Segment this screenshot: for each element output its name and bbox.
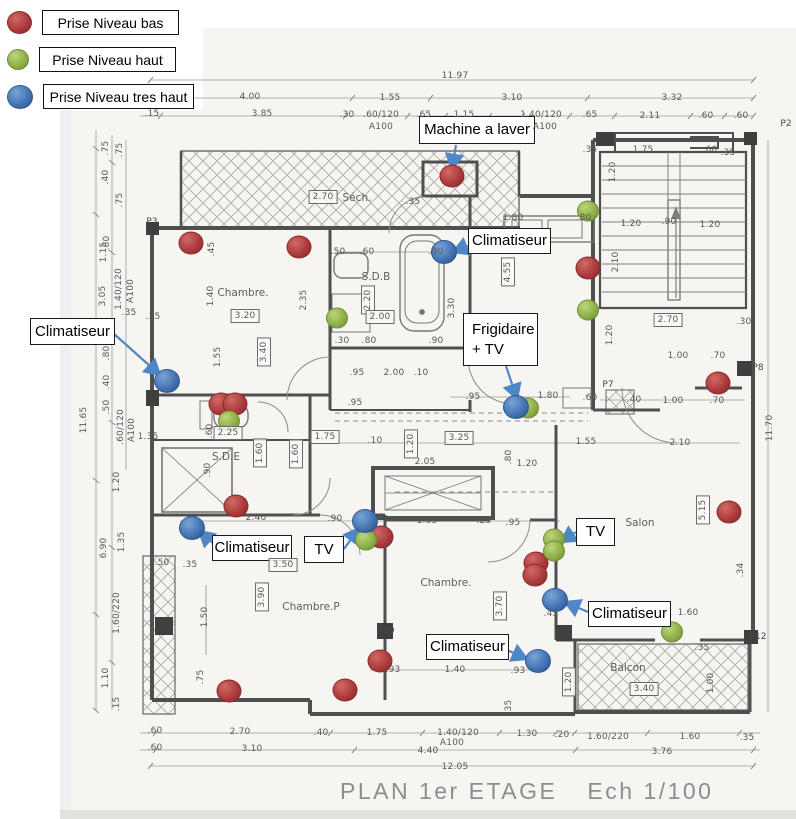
dim-label: .40 bbox=[314, 728, 329, 738]
dim-label: 1.60 bbox=[253, 439, 267, 468]
dim-label: 3.85 bbox=[252, 109, 273, 119]
dim-label: 1.20 bbox=[112, 472, 122, 493]
legend-red-dot-icon bbox=[7, 11, 32, 34]
dim-label: .35 bbox=[146, 312, 161, 322]
dim-label: A100 bbox=[127, 418, 137, 442]
callout-text: Climatiseur bbox=[215, 538, 290, 558]
legend-blue-dot-icon bbox=[7, 85, 33, 109]
plan-title-main: PLAN 1er ETAGE bbox=[340, 778, 557, 805]
dim-label: 1.35 bbox=[138, 432, 159, 442]
dim-label: 1.20 bbox=[517, 459, 538, 469]
dim-label: .35 bbox=[183, 560, 198, 570]
dim-label: .75 bbox=[101, 141, 111, 156]
outlet-dot-blue bbox=[352, 509, 378, 533]
dim-label: 2.70 bbox=[309, 190, 338, 204]
outlet-dot-red bbox=[576, 257, 601, 280]
room-label: Chambre. bbox=[217, 287, 268, 299]
pillar-label: P9 bbox=[160, 624, 171, 634]
dim-label: .35 bbox=[406, 197, 421, 207]
dim-label: A100 bbox=[126, 279, 136, 303]
pillar-label: P2 bbox=[780, 119, 791, 129]
dim-label: 3.30 bbox=[447, 298, 457, 319]
room-label: Salon bbox=[625, 517, 654, 529]
dim-label: .60 bbox=[703, 145, 718, 155]
dim-label: .50 bbox=[331, 247, 346, 257]
dim-label: .90 bbox=[429, 336, 444, 346]
dim-label: 3.25 bbox=[445, 431, 474, 445]
dim-label: .60 bbox=[360, 247, 375, 257]
dim-label: .40 bbox=[627, 395, 642, 405]
dim-label: .80 bbox=[102, 236, 112, 251]
dim-label: 1.35 bbox=[117, 532, 127, 553]
dim-label: .65 bbox=[583, 110, 598, 120]
dim-label: 1.55 bbox=[380, 93, 401, 103]
dim-label: 11.97 bbox=[442, 71, 469, 81]
dim-label: 2.70 bbox=[230, 727, 251, 737]
dim-label: 1.30 bbox=[517, 729, 538, 739]
dim-label: 3.10 bbox=[502, 93, 523, 103]
dim-label: 2.11 bbox=[640, 111, 661, 121]
dim-label: A100 bbox=[369, 122, 393, 132]
dim-label: .95 bbox=[348, 398, 363, 408]
dim-label: 2.70 bbox=[654, 313, 683, 327]
outlet-dot-green bbox=[543, 541, 565, 562]
dim-label: .95 bbox=[466, 392, 481, 402]
dim-label: 3.20 bbox=[231, 309, 260, 323]
dim-label: 2.25 bbox=[214, 426, 243, 440]
dim-label: 1.20 bbox=[404, 430, 418, 459]
scanned-floor-plan-page: Machine a laverClimatiseurClimatiseurFri… bbox=[0, 0, 796, 819]
dim-label: 4.40 bbox=[418, 746, 439, 756]
dim-label: 2.10 bbox=[670, 438, 691, 448]
dim-label: 3.76 bbox=[652, 747, 673, 757]
dim-label: 1.40 bbox=[206, 286, 216, 307]
dim-label: .60 bbox=[734, 111, 749, 121]
dim-label: 1.10 bbox=[101, 668, 111, 689]
dim-label: .30 bbox=[340, 110, 355, 120]
dim-label: 3.40 bbox=[257, 338, 271, 367]
outlet-dot-red bbox=[179, 232, 204, 255]
dim-label: 1.00 bbox=[668, 351, 689, 361]
pillar-label: P8 bbox=[752, 363, 763, 373]
callout-climatiseur-left: Climatiseur bbox=[30, 318, 115, 345]
outlet-dot-red bbox=[523, 564, 548, 587]
dim-label: .80 bbox=[102, 346, 112, 361]
legend-label: Prise Niveau haut bbox=[39, 47, 176, 72]
dim-label: .34 bbox=[736, 563, 746, 578]
outlet-dot-green bbox=[326, 308, 348, 329]
dim-label: 2.00 bbox=[384, 368, 405, 378]
dim-label: .30 bbox=[737, 317, 752, 327]
dim-label: .30 bbox=[335, 336, 350, 346]
dim-label: 6.90 bbox=[99, 538, 109, 559]
callout-text: Climatiseur bbox=[592, 604, 667, 624]
room-label: S.D.E bbox=[212, 451, 240, 463]
legend-item-very-high: Prise Niveau tres haut bbox=[7, 84, 194, 109]
outlet-dot-blue bbox=[179, 516, 205, 540]
room-label: Balcon bbox=[610, 662, 645, 674]
dim-label: 2.05 bbox=[415, 457, 436, 467]
dim-label: .70 bbox=[710, 396, 725, 406]
room-label: S.D.B bbox=[362, 271, 391, 283]
callout-climatiseur-bottom: Climatiseur bbox=[426, 634, 509, 660]
callout-machine-a-laver: Machine a laver bbox=[419, 116, 535, 144]
dim-label: .40 bbox=[102, 375, 112, 390]
dim-label: .60 bbox=[583, 393, 598, 403]
dim-label: .60 bbox=[699, 111, 714, 121]
dim-label: .40 bbox=[101, 170, 111, 185]
dim-label: .95 bbox=[506, 518, 521, 528]
dim-label: 1.20 bbox=[608, 162, 618, 183]
dim-label: 2.00 bbox=[366, 310, 395, 324]
dim-label: 12.05 bbox=[442, 762, 469, 772]
dim-label: .10 bbox=[414, 368, 429, 378]
dim-label: 2.40 bbox=[246, 513, 267, 523]
pillar-label: P12 bbox=[750, 632, 767, 642]
dim-label: .65 bbox=[417, 110, 432, 120]
dim-label: .35 bbox=[583, 145, 598, 155]
dim-label: .80 bbox=[577, 213, 592, 223]
dim-label: 3.70 bbox=[493, 592, 507, 621]
dim-label: .20 bbox=[555, 730, 570, 740]
dim-label: .15 bbox=[145, 109, 160, 119]
callout-text: + TV bbox=[472, 340, 504, 360]
outlet-dot-blue bbox=[525, 649, 551, 673]
room-label: Séch. bbox=[343, 192, 372, 204]
dim-label: .50 bbox=[102, 400, 112, 415]
dim-label: 4.55 bbox=[501, 258, 515, 287]
dim-label: 1.00 bbox=[706, 673, 716, 694]
dim-label: .35 bbox=[122, 308, 137, 318]
outlet-dot-red bbox=[440, 165, 465, 188]
dim-label: .90 bbox=[429, 247, 444, 257]
dim-label: .90 bbox=[662, 217, 677, 227]
pillar-label: P10 bbox=[378, 626, 395, 636]
dim-label: 1.60 bbox=[680, 732, 701, 742]
legend-item-high: Prise Niveau haut bbox=[7, 47, 176, 72]
pillar-label: P7 bbox=[602, 380, 613, 390]
dim-label: 1.40/120 bbox=[114, 268, 124, 310]
dim-label: .75 bbox=[115, 193, 125, 208]
room-label: Chambre. bbox=[420, 577, 471, 589]
dim-label: 1.55 bbox=[576, 437, 597, 447]
outlet-dot-red bbox=[287, 236, 312, 259]
dim-label: 11.65 bbox=[79, 407, 89, 434]
dim-label: 1.40/120 bbox=[520, 110, 562, 120]
callout-frigidaire-tv: Frigidaire+ TV bbox=[463, 313, 538, 366]
dim-label: 1.20 bbox=[700, 220, 721, 230]
dim-label: 1.15 bbox=[454, 110, 475, 120]
dim-label: 1.00 bbox=[663, 396, 684, 406]
dim-label: .10 bbox=[368, 436, 383, 446]
callout-text: Machine a laver bbox=[424, 120, 530, 140]
dim-label: .45 bbox=[544, 609, 559, 619]
callout-tv-mid: TV bbox=[304, 536, 344, 563]
dim-label: A100 bbox=[440, 738, 464, 748]
callout-text: Climatiseur bbox=[472, 231, 547, 251]
legend-item-low: Prise Niveau bas bbox=[7, 10, 179, 35]
dim-label: .35 bbox=[504, 700, 514, 715]
plan-title: PLAN 1er ETAGE Ech 1/100 bbox=[340, 778, 713, 805]
legend-label: Prise Niveau bas bbox=[42, 10, 179, 35]
dim-label: .60 bbox=[205, 424, 215, 439]
dim-label: .35 bbox=[695, 643, 710, 653]
dim-label: .75 bbox=[115, 143, 125, 158]
dim-label: 1.20 bbox=[621, 219, 642, 229]
dim-label: 1.75 bbox=[367, 728, 388, 738]
scan-paper-left bbox=[60, 110, 203, 819]
dim-label: 3.90 bbox=[255, 583, 269, 612]
callout-text: Climatiseur bbox=[430, 637, 505, 657]
dim-label: A100 bbox=[533, 122, 557, 132]
dim-label: 11.70 bbox=[765, 415, 775, 442]
dim-label: 1.60 bbox=[678, 608, 699, 618]
callout-climatiseur-top: Climatiseur bbox=[468, 228, 551, 254]
legend-green-dot-icon bbox=[7, 49, 29, 70]
dim-label: 3.40 bbox=[630, 682, 659, 696]
callout-text: Climatiseur bbox=[35, 322, 110, 342]
outlet-dot-green bbox=[577, 300, 599, 321]
dim-label: 1.55 bbox=[213, 347, 223, 368]
scan-bottom-edge bbox=[60, 810, 796, 819]
dim-label: 1.40/120 bbox=[437, 728, 479, 738]
dim-label: 1.60 bbox=[289, 440, 303, 469]
pillar-label: P11 bbox=[556, 628, 573, 638]
outlet-dot-red bbox=[333, 679, 358, 702]
dim-label: 1.50 bbox=[200, 607, 210, 628]
dim-label: .60/120 bbox=[116, 409, 126, 445]
dim-label: .93 bbox=[511, 666, 526, 676]
dim-label: 1.80 bbox=[503, 213, 524, 223]
dim-label: .80 bbox=[362, 336, 377, 346]
dim-label: 3.32 bbox=[662, 93, 683, 103]
dim-label: 1.80 bbox=[538, 391, 559, 401]
dim-label: .45 bbox=[207, 242, 217, 257]
room-label: Chambre.P bbox=[282, 601, 340, 613]
dim-label: .60 bbox=[148, 743, 163, 753]
dim-label: .75 bbox=[196, 670, 206, 685]
dim-label: 5.15 bbox=[696, 496, 710, 525]
outlet-dot-red bbox=[217, 680, 242, 703]
callout-tv-right: TV bbox=[576, 518, 615, 546]
dim-label: 1.40 bbox=[445, 665, 466, 675]
pillar-label: P3 bbox=[146, 217, 157, 227]
callout-climatiseur-right: Climatiseur bbox=[588, 601, 671, 627]
dim-label: .90 bbox=[203, 463, 213, 478]
scan-left-edge bbox=[60, 110, 71, 819]
dim-label: .25 bbox=[477, 516, 492, 526]
dim-label: 3.10 bbox=[242, 744, 263, 754]
dim-label: .60/120 bbox=[363, 110, 399, 120]
outlet-dot-blue bbox=[503, 395, 529, 419]
dim-label: .90 bbox=[328, 514, 343, 524]
dim-label: 1.75 bbox=[311, 430, 340, 444]
callout-text: TV bbox=[314, 540, 333, 560]
dim-label: 3.50 bbox=[269, 558, 298, 572]
dim-label: .50 bbox=[155, 558, 170, 568]
dim-label: .15 bbox=[112, 697, 122, 712]
dim-label: .93 bbox=[386, 665, 401, 675]
dim-label: .80 bbox=[504, 450, 514, 465]
callout-text: TV bbox=[586, 522, 605, 542]
dim-label: .35 bbox=[721, 148, 736, 158]
outlet-dot-red bbox=[717, 501, 742, 524]
dim-label: 1.20 bbox=[562, 668, 576, 697]
dim-label: 4.00 bbox=[240, 92, 261, 102]
dim-label: 1.20 bbox=[605, 325, 615, 346]
dim-label: 1.85 bbox=[417, 516, 438, 526]
dim-label: 3.05 bbox=[98, 286, 108, 307]
outlet-dot-blue bbox=[154, 369, 180, 393]
dim-label: 1.75 bbox=[633, 145, 654, 155]
dim-label: 2.10 bbox=[611, 252, 621, 273]
dim-label: .60 bbox=[148, 726, 163, 736]
plan-title-scale: Ech 1/100 bbox=[587, 778, 713, 805]
outlet-dot-red bbox=[706, 372, 731, 395]
callout-text: Frigidaire bbox=[472, 320, 535, 340]
dim-label: .95 bbox=[350, 368, 365, 378]
dim-label: .70 bbox=[711, 351, 726, 361]
dim-label: 1.60/220 bbox=[112, 592, 122, 634]
legend-label: Prise Niveau tres haut bbox=[43, 84, 194, 109]
dim-label: 1.60/220 bbox=[587, 732, 629, 742]
dim-label: .35 bbox=[740, 733, 755, 743]
dim-label: 2.35 bbox=[299, 290, 309, 311]
